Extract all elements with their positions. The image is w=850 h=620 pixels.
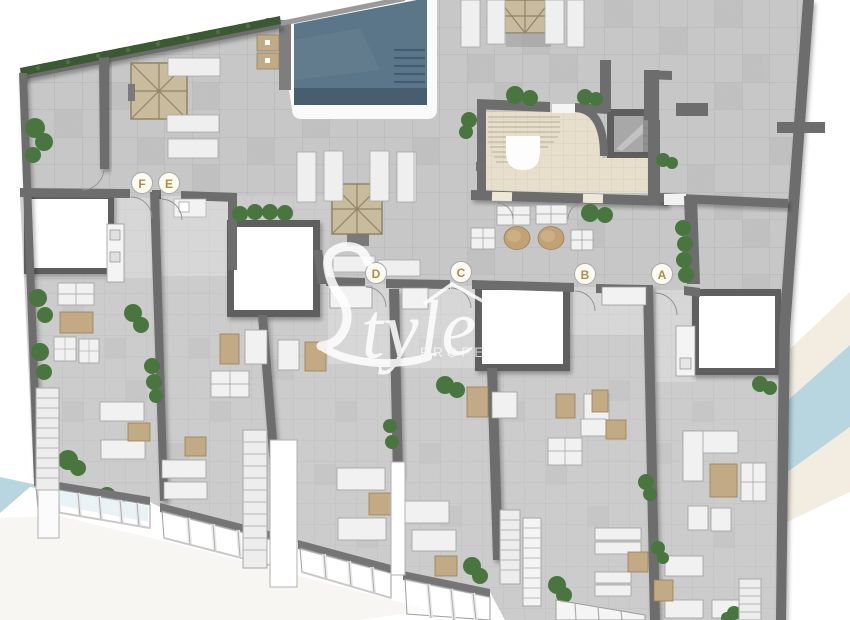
svg-text:B: B [581,268,590,282]
svg-text:D: D [372,267,381,281]
svg-text:F: F [138,177,145,191]
svg-text:E: E [165,177,173,191]
svg-text:C: C [457,266,466,280]
svg-text:A: A [658,268,667,282]
svg-text:tyle: tyle [360,284,478,376]
svg-text:PROPERTIES: PROPERTIES [420,345,547,360]
